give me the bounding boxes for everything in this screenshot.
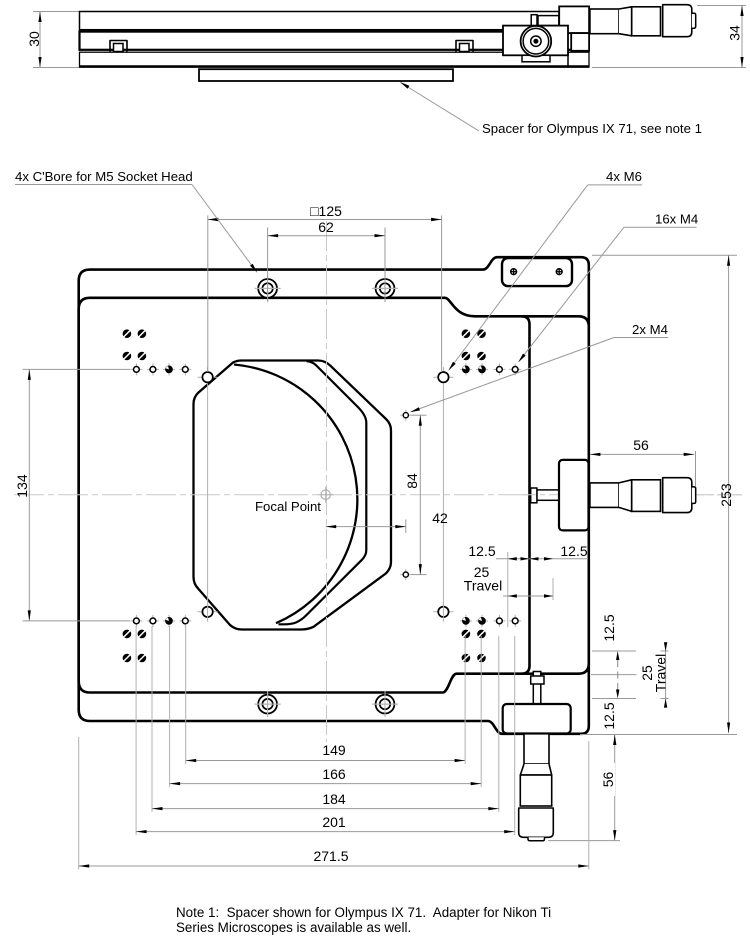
svg-text:12.5: 12.5 bbox=[601, 702, 617, 729]
svg-text:84: 84 bbox=[404, 473, 420, 489]
svg-text:30: 30 bbox=[26, 31, 42, 47]
svg-text:□125: □125 bbox=[310, 203, 342, 219]
svg-text:4x C'Bore for M5 Socket Head: 4x C'Bore for M5 Socket Head bbox=[15, 169, 193, 184]
svg-text:2x M4: 2x M4 bbox=[632, 322, 668, 337]
svg-text:42: 42 bbox=[432, 510, 448, 526]
svg-text:34: 34 bbox=[727, 25, 743, 41]
svg-text:12.5: 12.5 bbox=[468, 543, 495, 559]
svg-text:149: 149 bbox=[322, 742, 346, 758]
svg-text:12.5: 12.5 bbox=[560, 543, 587, 559]
svg-text:56: 56 bbox=[600, 772, 616, 788]
svg-text:Spacer for Olympus IX 71, see: Spacer for Olympus IX 71, see note 1 bbox=[482, 121, 702, 136]
svg-text:271.5: 271.5 bbox=[313, 848, 348, 864]
svg-text:Series Microscopes is availabl: Series Microscopes is available as well. bbox=[176, 920, 411, 935]
svg-text:Note 1: Spacer shown for Olym: Note 1: Spacer shown for Olympus IX 71. … bbox=[176, 905, 551, 920]
svg-text:Travel: Travel bbox=[653, 654, 669, 692]
svg-text:56: 56 bbox=[633, 437, 649, 453]
svg-text:134: 134 bbox=[14, 474, 30, 498]
svg-text:16x M4: 16x M4 bbox=[655, 212, 698, 227]
svg-text:Focal Point: Focal Point bbox=[255, 499, 321, 514]
svg-text:12.5: 12.5 bbox=[601, 614, 617, 641]
svg-text:Travel: Travel bbox=[464, 578, 502, 594]
svg-text:166: 166 bbox=[322, 766, 346, 782]
svg-text:4x M6: 4x M6 bbox=[606, 169, 642, 184]
svg-text:62: 62 bbox=[318, 219, 334, 235]
svg-text:253: 253 bbox=[718, 483, 734, 507]
svg-text:184: 184 bbox=[322, 791, 346, 807]
svg-text:201: 201 bbox=[322, 814, 346, 830]
